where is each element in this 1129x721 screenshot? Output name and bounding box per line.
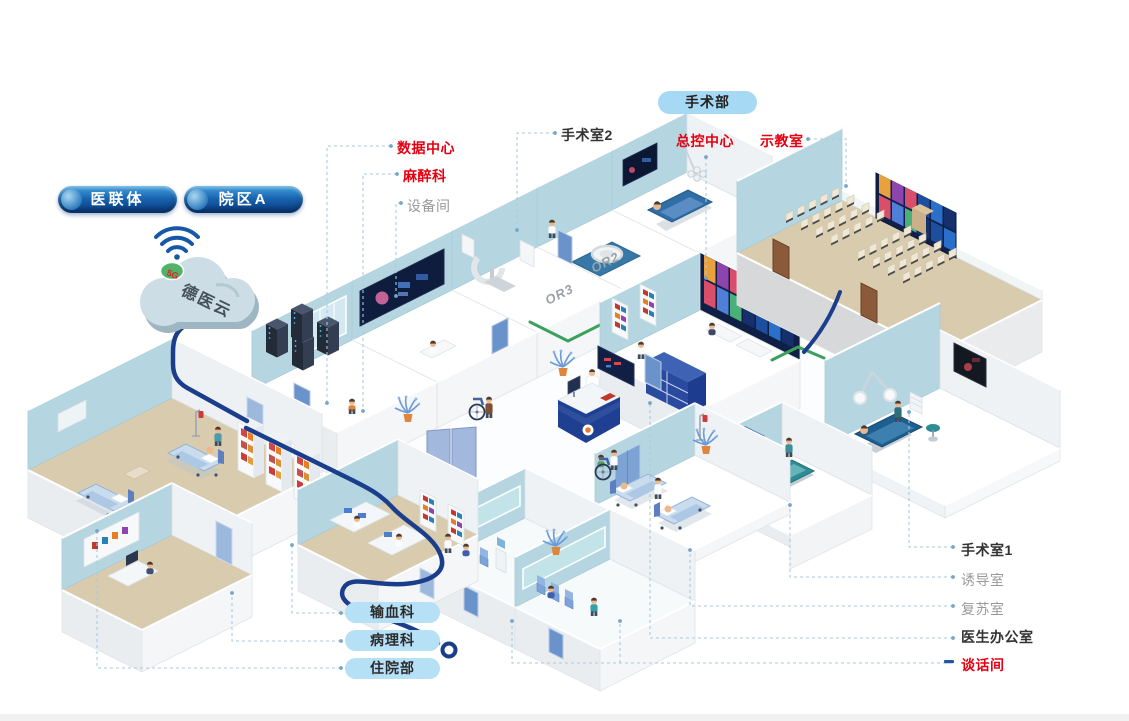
- label-induction-room: 诱导室: [961, 570, 1005, 590]
- pill-blood-transfusion: 输血科: [345, 602, 440, 623]
- label-master-control: 总控中心: [676, 131, 734, 151]
- label-equipment-room: 设备间: [407, 196, 451, 216]
- label-doctor-office: 医生办公室: [961, 627, 1034, 647]
- surgery-department-pill: 手术部: [658, 91, 757, 114]
- badge-campus-a: 院区A: [184, 186, 303, 213]
- label-operating-room-1: 手术室1: [961, 540, 1013, 560]
- wifi-icon: [156, 228, 198, 260]
- pill-inpatient: 住院部: [345, 658, 440, 679]
- badge-medical-alliance: 医联体: [58, 186, 177, 213]
- label-anesthesia: 麻醉科: [403, 166, 447, 186]
- label-operating-room-2: 手术室2: [561, 125, 613, 145]
- label-recovery-room: 复苏室: [961, 599, 1005, 619]
- footer-strip: [0, 714, 1129, 721]
- label-data-center: 数据中心: [397, 138, 455, 158]
- pill-pathology: 病理科: [345, 630, 440, 651]
- cloud-icon: 德医云 5G: [140, 257, 259, 333]
- label-demo-classroom: 示教室: [760, 131, 804, 151]
- hospital-isometric-diagram: 德医云 5G OR3 OR2: [0, 0, 1129, 721]
- label-talk-room: 谈话间: [961, 655, 1005, 675]
- isometric-scene: 德医云 5G OR3 OR2: [0, 0, 1129, 721]
- talk-room-dash: [944, 660, 954, 663]
